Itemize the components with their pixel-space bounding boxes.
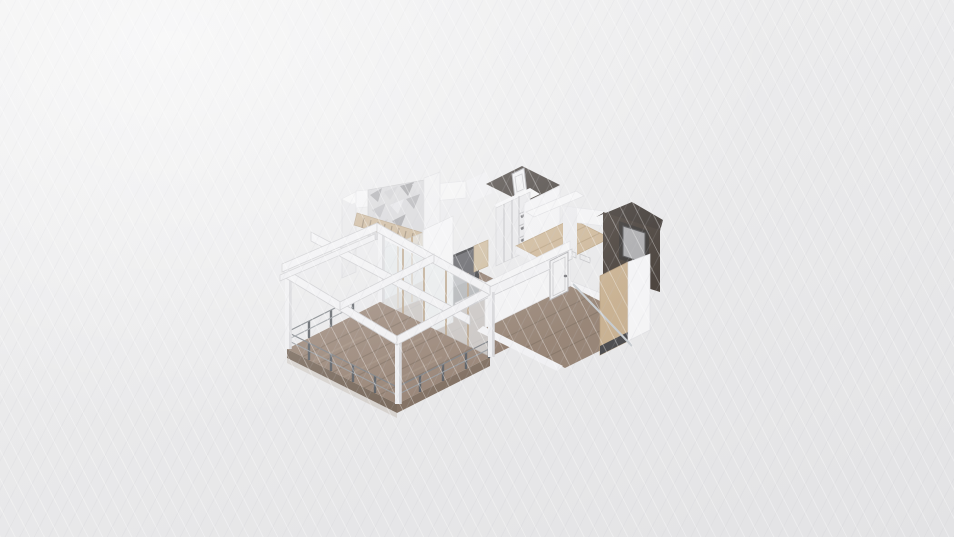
floorplan-3d-canvas[interactable]: [0, 0, 954, 537]
tan-cabinet[interactable]: [474, 240, 488, 272]
floorplan-viewport[interactable]: [0, 0, 954, 537]
bedroom-se-white-wall: [628, 254, 650, 341]
bathroom-wall-left-band: [466, 172, 492, 202]
